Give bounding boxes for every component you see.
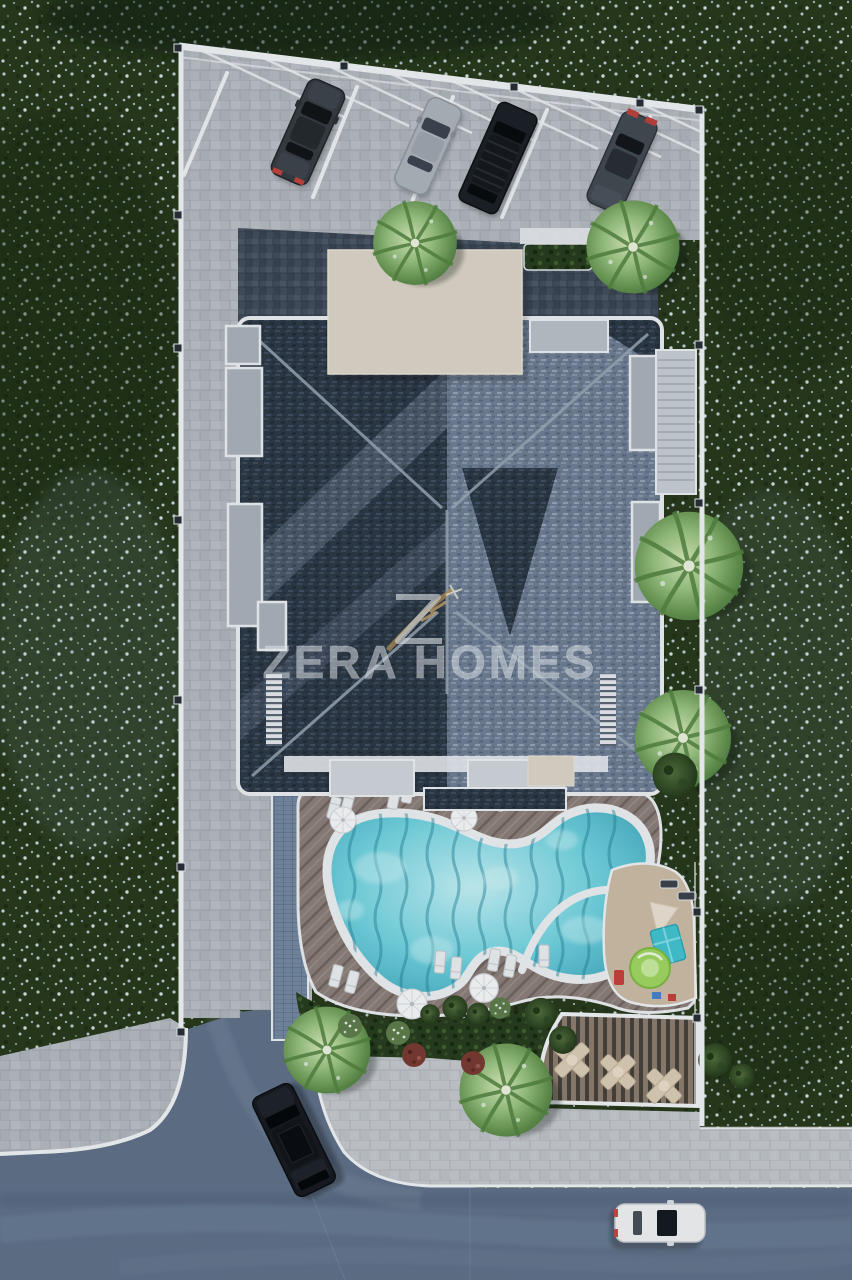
color-cast-overlay [0,0,852,1280]
site-plan-render: ZERA HOMES [0,0,852,1280]
